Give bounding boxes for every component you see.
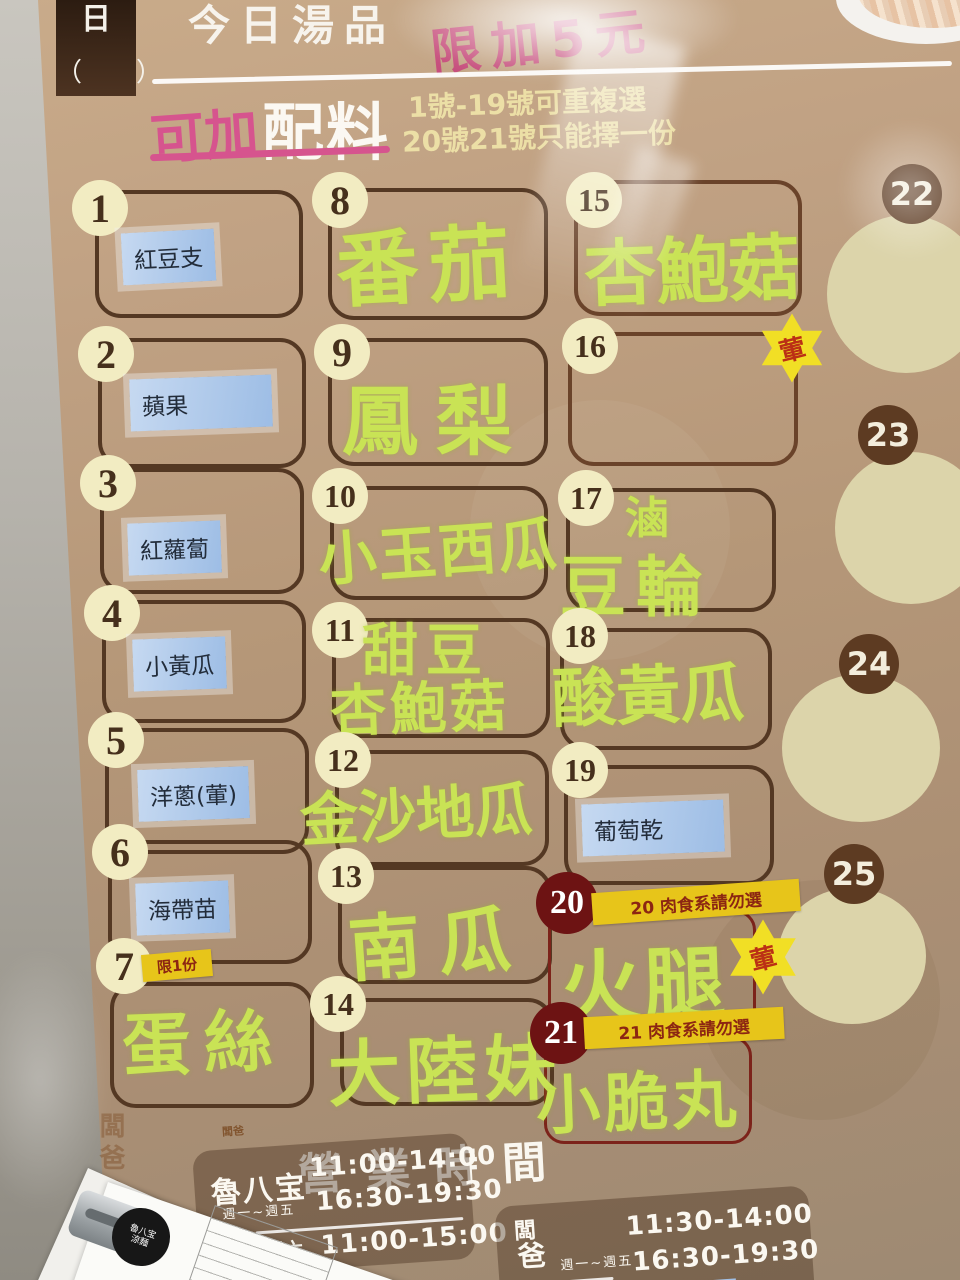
hours-panel-shop2: 闆 爸 週一~週五 11:30-14:00 16:30-19:30 週六 <box>494 1185 816 1280</box>
shop2-weekday-range: 週一~週五 <box>560 1250 634 1274</box>
item-number-badge: 6 <box>92 824 148 880</box>
handwritten-addon-prefix: 可加 <box>147 88 260 174</box>
menu-poster-photo: 日 （ ） 今日湯品 限加5元 可加 配料 1號-19號可重複選 20號21號只… <box>0 0 960 1280</box>
item-number-badge: 2 <box>78 326 134 382</box>
empty-slot-circle-22 <box>827 215 960 373</box>
item-handwritten-13: 南瓜 <box>345 879 532 996</box>
item-handwritten-8: 番茄 <box>333 195 523 323</box>
item-number-badge-brown: 25 <box>824 844 884 904</box>
meat-character: 葷 <box>716 910 811 1005</box>
item-label-6: 海帶苗 <box>135 880 230 935</box>
item-number-badge: 19 <box>552 742 608 798</box>
shop2-time-2: 16:30-19:30 <box>631 1235 820 1278</box>
addon-title: 配料 <box>262 82 390 172</box>
item-number-badge-brown: 23 <box>858 405 918 465</box>
item-number-badge: 4 <box>84 585 140 641</box>
meat-character: 葷 <box>748 304 835 391</box>
item-handwritten-18: 酸黃瓜 <box>550 642 745 741</box>
item-number-badge: 17 <box>558 470 614 526</box>
item-number-badge: 3 <box>80 455 136 511</box>
item-label-2: 蘋果 <box>129 375 273 432</box>
item-label-5: 洋蔥(葷) <box>137 766 250 822</box>
selection-rule-2: 20號21號只能擇一份 <box>401 111 676 161</box>
empty-slot-circle-24 <box>782 674 940 822</box>
item-handwritten-21: 小脆丸 <box>534 1048 741 1147</box>
item-label-1: 紅豆支 <box>121 229 217 286</box>
shop2-time-1: 11:30-14:00 <box>625 1199 814 1242</box>
item-number-badge-brown: 24 <box>839 634 899 694</box>
item-label-19: 葡萄乾 <box>581 800 725 857</box>
item-handwritten-10: 小玉西瓜 <box>315 497 560 598</box>
day-parentheses: （ ） <box>56 52 136 89</box>
empty-slot-circle-23 <box>835 452 960 604</box>
shop2-name-bottom: 爸 <box>516 1234 547 1276</box>
meat-star-badge-16: 葷 <box>756 312 828 384</box>
item-number-badge: 5 <box>88 712 144 768</box>
item-number-badge: 11 <box>312 602 368 658</box>
mini-seal: 闆爸 <box>222 1125 245 1138</box>
item-label-4: 小黃瓜 <box>132 636 227 691</box>
item-limit-tag-7: 限1份 <box>141 949 213 982</box>
item-label-3: 紅蘿蔔 <box>127 520 222 575</box>
day-character: 日 <box>56 0 136 38</box>
item-handwritten-15: 杏鮑菇 <box>582 208 802 320</box>
meat-star-badge-20: 葷 <box>724 918 802 996</box>
soup-title: 今日湯品 <box>188 0 396 53</box>
day-box: 日 （ ） <box>56 0 136 96</box>
item-handwritten-7: 蛋絲 <box>120 985 287 1090</box>
item-handwritten-14: 大陸妹 <box>326 1008 564 1121</box>
item-number-badge: 1 <box>72 180 128 236</box>
item-number-badge-brown: 22 <box>882 164 942 224</box>
item-number-badge: 16 <box>562 318 618 374</box>
item-handwritten-9: 鳳梨 <box>342 360 530 470</box>
item-handwritten-12: 金沙地瓜 <box>298 762 534 858</box>
